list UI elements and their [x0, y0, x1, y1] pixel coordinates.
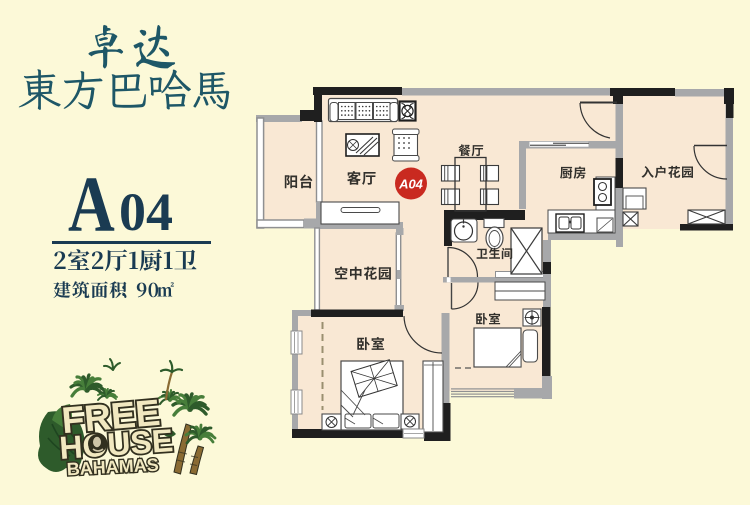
svg-text:A04: A04 [398, 177, 424, 192]
svg-text:BAHAMAS: BAHAMAS [66, 455, 159, 480]
svg-text:04: 04 [119, 182, 173, 242]
svg-text:A: A [68, 161, 115, 248]
